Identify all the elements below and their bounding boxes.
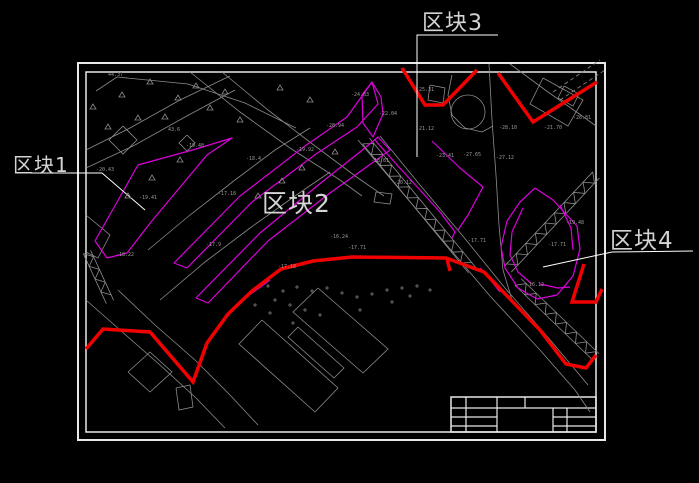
tree-triangle-symbol <box>119 92 125 97</box>
block2-label: 区块2 <box>262 189 331 218</box>
tree-triangle-symbol <box>90 104 96 109</box>
tree-triangle-symbol <box>105 124 111 129</box>
block3-label: 区块3 <box>422 11 483 36</box>
parcel-boundary-line <box>196 137 390 303</box>
title-block <box>451 397 596 432</box>
spot-elevation-label: -20.43 <box>96 167 114 173</box>
basemap-line <box>288 327 344 378</box>
basemap-line <box>128 352 172 392</box>
tree-triangle-symbol <box>332 149 338 154</box>
tree-triangle-symbol <box>149 175 155 180</box>
tree-triangle-symbol <box>222 89 228 94</box>
spot-elevation-label: -16.12 <box>526 282 544 288</box>
basemap-line <box>448 75 493 132</box>
spot-elevation-label: -17.18 <box>278 264 296 270</box>
block4-label: 区块4 <box>610 228 674 254</box>
tree-triangle-symbol <box>237 117 243 122</box>
spot-elevation-label: -16.24 <box>330 234 348 240</box>
spot-elevation-label: -21.70 <box>544 125 562 131</box>
hatch-strip-edge <box>91 250 114 300</box>
label-leader-line <box>417 35 498 157</box>
basemap-circle <box>451 95 485 129</box>
tree-triangle-symbol <box>193 83 199 88</box>
cad-drawing-stage: 44.37-20.43-19.41-18.22-19.48-17.18-17.1… <box>0 0 699 483</box>
spot-elevation-label: -19.92 <box>296 147 314 153</box>
block1-label: 区块1 <box>13 153 69 177</box>
spot-elevation-label: -27.12 <box>496 155 514 161</box>
basemap-line <box>374 192 392 204</box>
red-boundary-line <box>572 264 602 302</box>
tree-triangle-symbol <box>177 157 183 162</box>
tree-triangle-symbol <box>277 85 283 90</box>
spot-elevation-label: 44.37 <box>108 72 123 78</box>
spot-elevation-label: -17.71 <box>548 242 566 248</box>
spot-elevation-label: -17.18 <box>218 191 236 197</box>
basemap-line <box>380 136 588 385</box>
dashed-road-line <box>560 70 605 100</box>
spot-elevation-label: -19.48 <box>566 220 584 226</box>
spot-elevation-label: -22.04 <box>379 111 397 117</box>
spot-elevation-label: -23.41 <box>436 153 454 159</box>
spot-elevation-label: -17.9 <box>206 242 221 248</box>
spot-elevation-label: -18.22 <box>116 252 134 258</box>
spot-elevation-label: -17.71 <box>348 245 366 251</box>
tree-triangle-symbol <box>162 114 168 119</box>
tree-triangle-symbol <box>307 97 313 102</box>
tree-triangle-symbol <box>207 105 213 110</box>
tree-triangle-symbol <box>175 95 181 100</box>
spot-elevation-label: -19.48 <box>186 143 204 149</box>
basemap-line <box>239 320 338 412</box>
spot-elevation-label: -17.71 <box>468 238 486 244</box>
basemap-line <box>489 64 512 300</box>
spot-elevation-label: -18.4 <box>246 156 261 162</box>
hatch-strip-zigzag <box>507 172 595 265</box>
basemap-line <box>96 77 296 128</box>
spot-elevation-label: -24.83 <box>351 92 369 98</box>
label-leader-line <box>17 173 145 210</box>
spot-elevation-label: -21.12 <box>416 126 434 132</box>
parcel-boundary-line <box>510 208 532 284</box>
spot-elevation-label: -28.10 <box>499 125 517 131</box>
spot-elevation-label: -18.81 <box>371 158 389 164</box>
spot-elevation-label: -20.12 <box>394 180 412 186</box>
spot-elevation-label: 43.6 <box>168 127 180 133</box>
basemap-line <box>118 290 258 425</box>
spot-elevation-label: -26.81 <box>573 115 591 121</box>
cad-viewport[interactable]: 44.37-20.43-19.41-18.22-19.48-17.18-17.1… <box>0 0 699 483</box>
basemap-line <box>222 72 384 196</box>
tree-triangle-symbol <box>135 115 141 120</box>
basemap-line <box>176 385 193 410</box>
spot-elevation-label: -25.31 <box>416 87 434 93</box>
spot-elevation-label: -20.94 <box>326 123 344 129</box>
spot-elevation-label: -27.65 <box>463 152 481 158</box>
dashed-road-line <box>553 60 600 92</box>
outer-frame <box>78 63 605 440</box>
hatch-strip-zigzag <box>83 254 111 295</box>
parcel-boundary-line <box>174 82 378 268</box>
cad-linework-layer: 44.37-20.43-19.41-18.22-19.48-17.18-17.1… <box>17 35 693 440</box>
basemap-line <box>86 300 225 428</box>
basemap-line <box>190 72 362 196</box>
spot-elevation-label: -19.41 <box>139 195 157 201</box>
basemap-line <box>109 126 137 154</box>
